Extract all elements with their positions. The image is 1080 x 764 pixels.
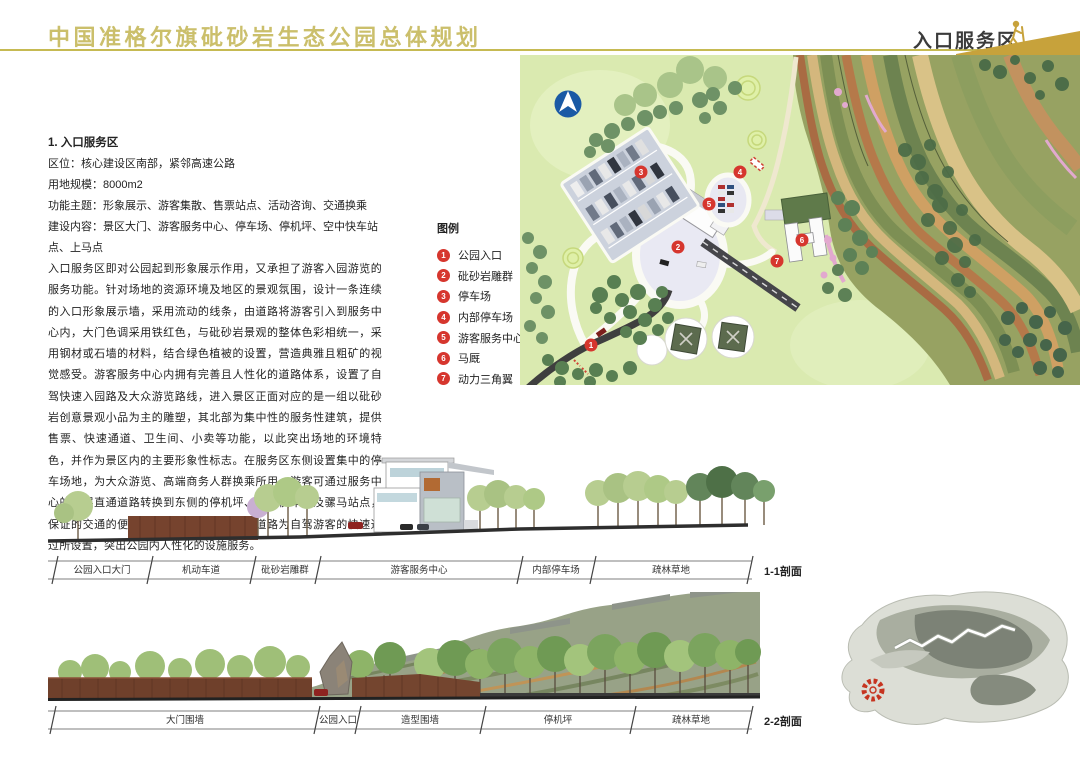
- section-2-2-label-bar: 大门围墙 公园入口 造型围墙 停机坪 疏林草地 2-2剖面: [48, 706, 802, 734]
- legend-marker-icon: 2: [437, 269, 450, 282]
- section-1-1: 公园入口大门 机动车道 砒砂岩雕群 游客服务中心 内部停车场 疏林草地 1-1剖…: [40, 448, 810, 588]
- svg-text:1: 1: [589, 341, 594, 350]
- svg-text:大门围墙: 大门围墙: [166, 714, 205, 726]
- section-2-2: 大门围墙 公园入口 造型围墙 停机坪 疏林草地 2-2剖面: [40, 592, 810, 738]
- area-line: 用地规模：8000m2: [48, 175, 382, 196]
- section-1-1-title: 1-1剖面: [764, 564, 802, 578]
- header-gold-decoration: [950, 18, 1080, 58]
- svg-text:4: 4: [738, 168, 743, 177]
- legend-item: 3停车场: [437, 286, 524, 307]
- legend: 图例 1公园入口 2砒砂岩雕群 3停车场 4内部停车场 5游客服务中心 6马厩 …: [437, 220, 524, 389]
- svg-text:造型围墙: 造型围墙: [401, 714, 440, 726]
- svg-text:疏林草地: 疏林草地: [672, 714, 711, 726]
- svg-text:停机坪: 停机坪: [544, 714, 573, 726]
- legend-item: 6马厩: [437, 348, 524, 369]
- legend-item: 4内部停车场: [437, 307, 524, 328]
- marker-internal-parking: 4: [734, 166, 747, 179]
- theme-line: 功能主题：形象展示、游客集散、售票站点、活动咨询、交通换乘: [48, 196, 382, 217]
- svg-text:公园入口: 公园入口: [319, 715, 357, 726]
- legend-marker-icon: 5: [437, 331, 450, 344]
- svg-text:公园入口大门: 公园入口大门: [73, 564, 130, 576]
- marker-visitor-center: 5: [703, 198, 716, 211]
- legend-item: 7动力三角翼: [437, 369, 524, 390]
- marker-parking: 3: [635, 166, 648, 179]
- marker-stable: 6: [796, 234, 809, 247]
- svg-text:游客服务中心: 游客服务中心: [390, 564, 448, 576]
- marker-park-entrance: 1: [585, 339, 598, 352]
- svg-text:7: 7: [775, 257, 780, 266]
- plan-board-page: 中国准格尔旗砒砂岩生态公园总体规划 入口服务区 1. 入口服务区 区位：核心建设…: [0, 0, 1080, 764]
- legend-marker-icon: 1: [437, 249, 450, 262]
- red-car: [348, 522, 363, 529]
- svg-text:3: 3: [639, 168, 644, 177]
- north-compass-icon: [555, 91, 582, 118]
- section-2-2-title: 2-2剖面: [764, 714, 802, 728]
- legend-item: 1公园入口: [437, 245, 524, 266]
- location-line: 区位：核心建设区南部，紧邻高速公路: [48, 154, 382, 175]
- legend-marker-icon: 7: [437, 372, 450, 385]
- car: [400, 524, 413, 530]
- svg-text:砒砂岩雕群: 砒砂岩雕群: [261, 564, 309, 576]
- gate-wall: [48, 674, 480, 699]
- svg-text:2: 2: [676, 243, 681, 252]
- marker-sculpture-group: 2: [672, 241, 685, 254]
- legend-marker-icon: 6: [437, 352, 450, 365]
- content-line: 建设内容：景区大门、游客服务中心、停车场、停机坪、空中快车站点、上马点: [48, 217, 382, 259]
- svg-text:疏林草地: 疏林草地: [652, 564, 691, 576]
- svg-text:5: 5: [707, 200, 712, 209]
- legend-marker-icon: 4: [437, 311, 450, 324]
- car: [417, 524, 429, 530]
- marker-glider: 7: [771, 255, 784, 268]
- site-plan-map: 1 2 3 4 5 6 7: [520, 55, 1080, 385]
- legend-item: 2砒砂岩雕群: [437, 266, 524, 287]
- legend-marker-icon: 3: [437, 290, 450, 303]
- svg-text:内部停车场: 内部停车场: [532, 564, 580, 576]
- page-title: 中国准格尔旗砒砂岩生态公园总体规划: [48, 20, 482, 52]
- terrain-key-map: [835, 582, 1080, 742]
- legend-item: 5游客服务中心: [437, 327, 524, 348]
- panel-heading: 1. 入口服务区: [48, 133, 382, 154]
- legend-title: 图例: [437, 220, 524, 236]
- svg-text:6: 6: [800, 236, 805, 245]
- svg-text:机动车道: 机动车道: [182, 564, 221, 576]
- section-1-1-label-bar: 公园入口大门 机动车道 砒砂岩雕群 游客服务中心 内部停车场 疏林草地 1-1剖…: [48, 556, 802, 584]
